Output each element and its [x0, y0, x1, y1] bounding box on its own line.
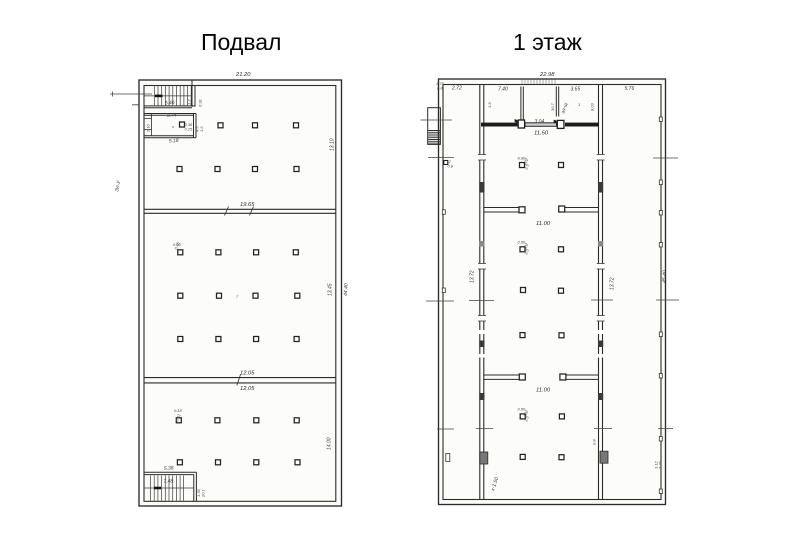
- svg-text:44.40: 44.40: [343, 283, 350, 296]
- svg-text:5.46: 5.46: [165, 100, 175, 107]
- svg-text:3.65: 3.65: [571, 87, 581, 93]
- svg-text:0.8: 0.8: [437, 86, 443, 91]
- svg-text:14.00: 14.00: [327, 437, 333, 450]
- svg-text:5.38: 5.38: [164, 465, 174, 472]
- svg-text:1: 1: [578, 102, 580, 107]
- svg-text:1.6: 1.6: [199, 126, 204, 132]
- svg-text:45.40: 45.40: [662, 270, 669, 283]
- svg-text:3.04: 3.04: [535, 119, 545, 125]
- svg-text:2.42: 2.42: [658, 460, 663, 470]
- svg-text:12.05: 12.05: [240, 371, 255, 377]
- svg-text:0.8: 0.8: [448, 164, 454, 169]
- svg-text:Подвал: Подвал: [201, 29, 281, 55]
- svg-text:13.72: 13.72: [470, 270, 476, 283]
- svg-text:30.7: 30.7: [550, 102, 555, 111]
- svg-text:0.18: 0.18: [174, 408, 183, 413]
- svg-text:7.48: 7.48: [163, 478, 173, 485]
- svg-text:19.65: 19.65: [240, 202, 255, 208]
- svg-text:12.05: 12.05: [240, 386, 255, 392]
- svg-text:2.10: 2.10: [146, 123, 151, 133]
- svg-text:1.9: 1.9: [487, 102, 492, 108]
- svg-text:11.00: 11.00: [536, 221, 551, 227]
- svg-text:3.74: 3.74: [167, 112, 177, 119]
- svg-text:1.2: 1.2: [187, 99, 192, 105]
- svg-text:21.20: 21.20: [235, 72, 251, 78]
- svg-text:20.1: 20.1: [201, 489, 206, 498]
- svg-text:13.72: 13.72: [610, 277, 616, 290]
- svg-text:0.91: 0.91: [198, 99, 203, 107]
- svg-text:5.18: 5.18: [169, 138, 179, 145]
- svg-text:22.98: 22.98: [539, 72, 555, 78]
- svg-text:7.40: 7.40: [498, 87, 508, 93]
- svg-text:8.03: 8.03: [590, 102, 595, 111]
- svg-text:11.00: 11.00: [536, 388, 551, 394]
- svg-text:0.8: 0.8: [592, 439, 597, 445]
- svg-text:0.25: 0.25: [185, 127, 194, 132]
- svg-text:13.45: 13.45: [328, 283, 334, 296]
- svg-text:1 этаж: 1 этаж: [513, 29, 582, 55]
- svg-text:13.10: 13.10: [330, 138, 336, 151]
- svg-text:5.76: 5.76: [625, 86, 635, 92]
- svg-text:11.50: 11.50: [534, 131, 549, 137]
- svg-text:2.72: 2.72: [451, 86, 462, 92]
